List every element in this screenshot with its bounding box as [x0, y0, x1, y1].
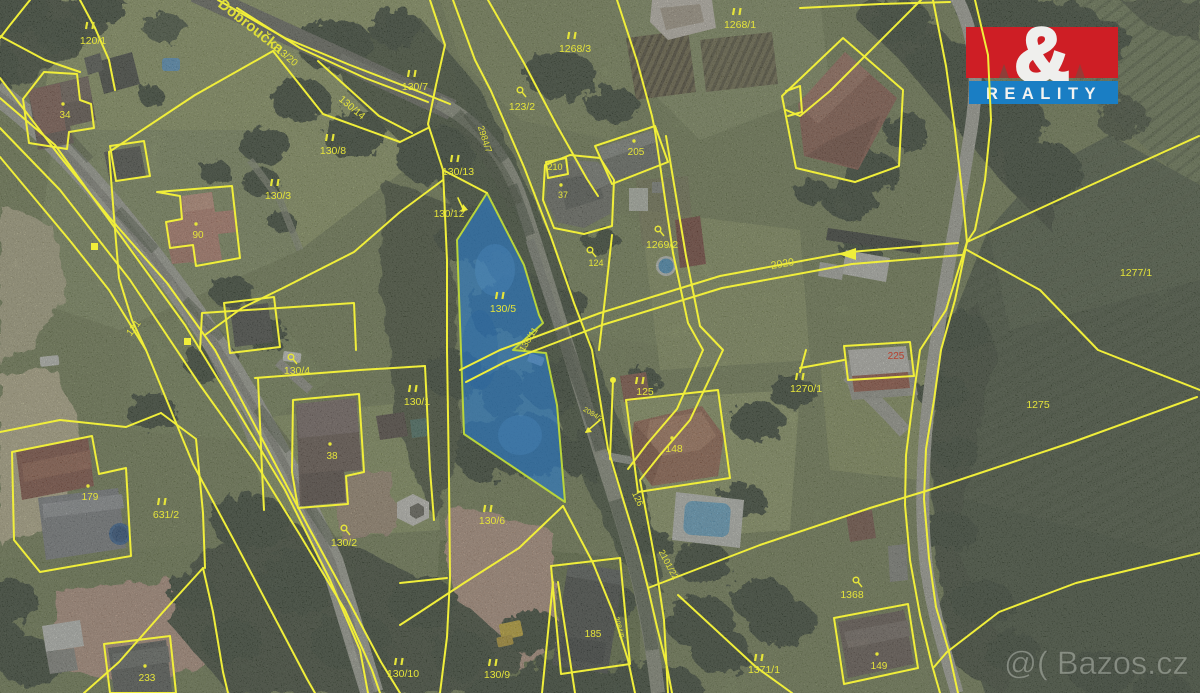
svg-text:185: 185	[585, 629, 602, 640]
svg-text:38: 38	[326, 451, 338, 462]
svg-text:225: 225	[888, 351, 905, 362]
svg-text:130/5: 130/5	[490, 303, 516, 315]
svg-text:130/2: 130/2	[331, 537, 357, 549]
svg-text:REALITY: REALITY	[986, 85, 1102, 103]
svg-text:233: 233	[139, 673, 156, 684]
svg-text:1275: 1275	[1026, 399, 1050, 411]
svg-text:37: 37	[558, 190, 568, 200]
svg-text:130/3: 130/3	[265, 190, 291, 202]
svg-text:130/8: 130/8	[320, 145, 346, 157]
svg-text:130/9: 130/9	[484, 669, 510, 681]
svg-text:1268/1: 1268/1	[724, 19, 756, 31]
svg-text:149: 149	[871, 661, 888, 672]
svg-text:130/1: 130/1	[404, 396, 430, 408]
svg-text:34: 34	[59, 110, 71, 121]
svg-text:130/10: 130/10	[387, 668, 419, 680]
svg-text:90: 90	[192, 230, 204, 241]
svg-text:148: 148	[665, 443, 683, 455]
svg-text:124: 124	[588, 258, 603, 268]
svg-text:179: 179	[82, 492, 99, 503]
svg-text:123/2: 123/2	[509, 101, 535, 113]
svg-text:@( Bazos.cz: @( Bazos.cz	[1004, 645, 1189, 681]
svg-text:125: 125	[636, 386, 654, 398]
svg-text:1368: 1368	[840, 589, 864, 601]
svg-text:130/7: 130/7	[402, 81, 428, 93]
svg-text:210: 210	[547, 162, 562, 172]
svg-text:1270/1: 1270/1	[790, 383, 822, 395]
svg-text:130/13: 130/13	[442, 166, 474, 178]
svg-text:1268/3: 1268/3	[559, 43, 591, 55]
svg-text:120/1: 120/1	[80, 35, 106, 47]
svg-text:1269/2: 1269/2	[646, 239, 678, 251]
svg-text:631/2: 631/2	[153, 509, 179, 521]
svg-text:205: 205	[628, 147, 645, 158]
svg-text:1371/1: 1371/1	[748, 664, 780, 676]
svg-text:130/4: 130/4	[284, 365, 310, 377]
svg-text:1277/1: 1277/1	[1120, 267, 1152, 279]
svg-text:130/6: 130/6	[479, 515, 505, 527]
svg-text:130/12: 130/12	[434, 209, 465, 220]
